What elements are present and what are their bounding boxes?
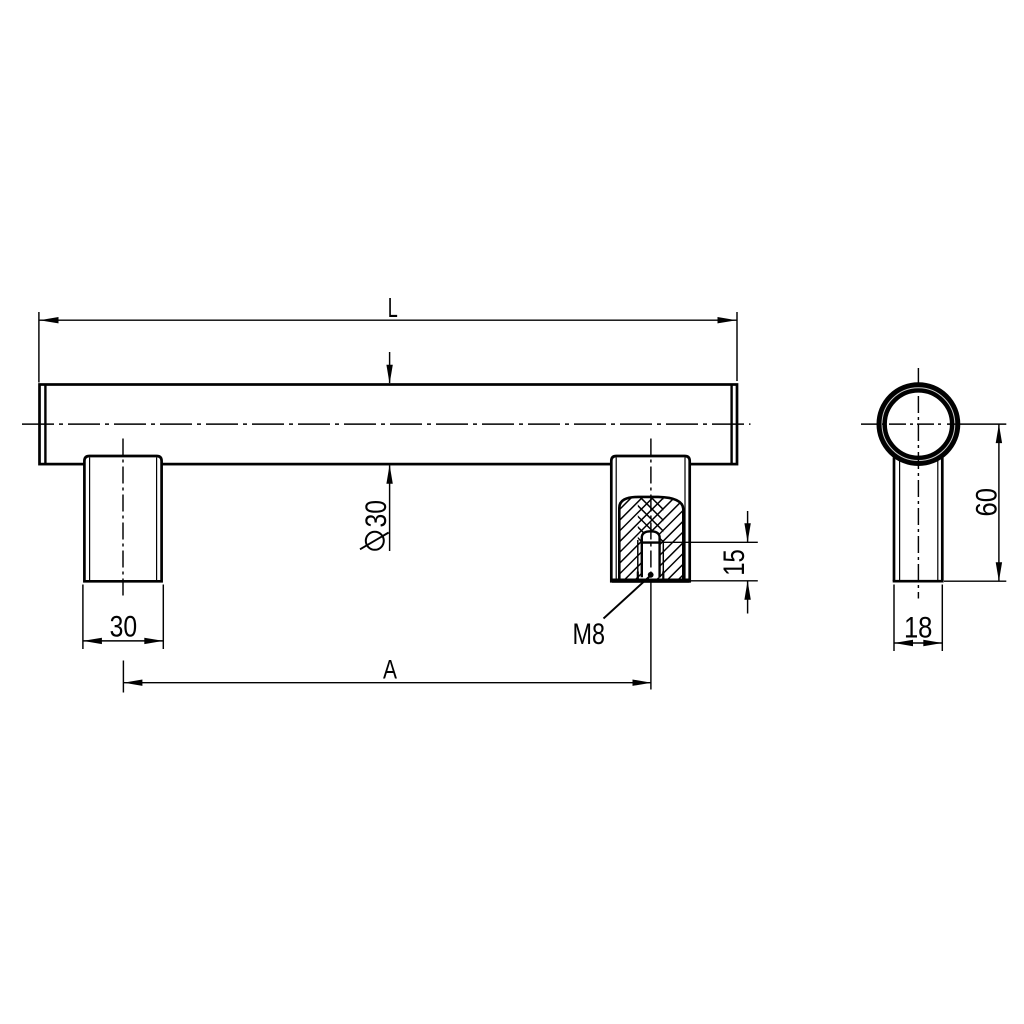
svg-text:30: 30 [360,500,393,528]
svg-text:30: 30 [110,611,138,644]
svg-text:M8: M8 [573,618,606,651]
svg-text:15: 15 [718,549,751,576]
svg-text:A: A [383,655,397,685]
svg-text:60: 60 [970,488,1003,517]
svg-text:L: L [388,292,398,323]
svg-text:18: 18 [904,612,933,645]
